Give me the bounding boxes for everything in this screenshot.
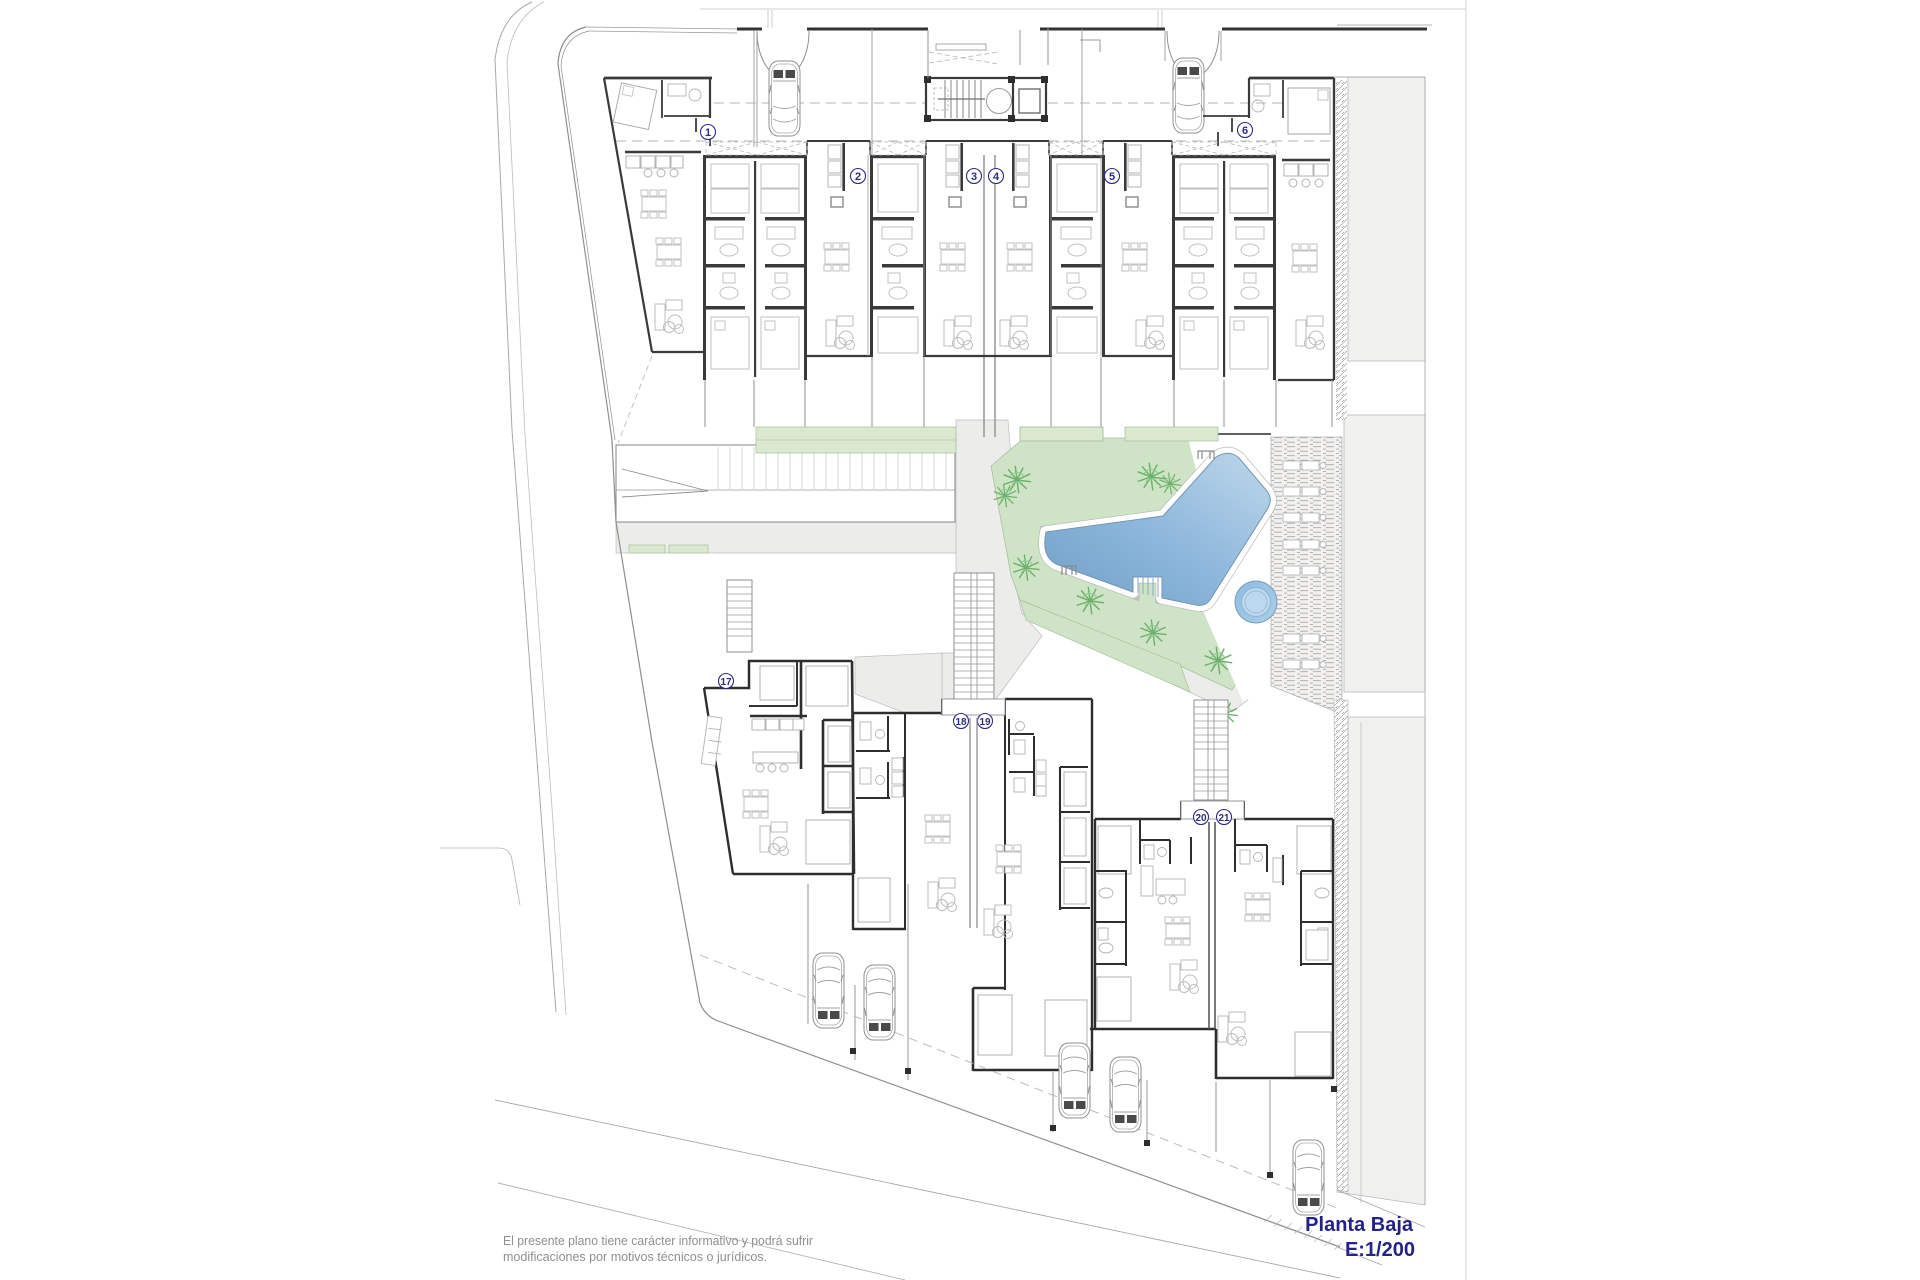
svg-text:18: 18 <box>955 717 967 728</box>
svg-text:modificaciones por motivos téc: modificaciones por motivos técnicos o ju… <box>503 1250 767 1264</box>
svg-text:20: 20 <box>1195 813 1207 824</box>
svg-text:5: 5 <box>1109 171 1115 183</box>
svg-text:21: 21 <box>1218 813 1230 824</box>
svg-text:19: 19 <box>979 717 991 728</box>
svg-text:E:1/200: E:1/200 <box>1345 1239 1415 1261</box>
svg-text:6: 6 <box>1242 125 1248 137</box>
svg-text:Planta Baja: Planta Baja <box>1305 1214 1414 1236</box>
svg-text:1: 1 <box>705 127 711 139</box>
svg-text:4: 4 <box>993 171 1000 183</box>
svg-text:El presente plano tiene ca: El presente plano tiene carácter informa… <box>503 1234 813 1248</box>
svg-text:2: 2 <box>855 171 861 183</box>
svg-text:17: 17 <box>720 677 732 688</box>
svg-text:3: 3 <box>971 171 977 183</box>
